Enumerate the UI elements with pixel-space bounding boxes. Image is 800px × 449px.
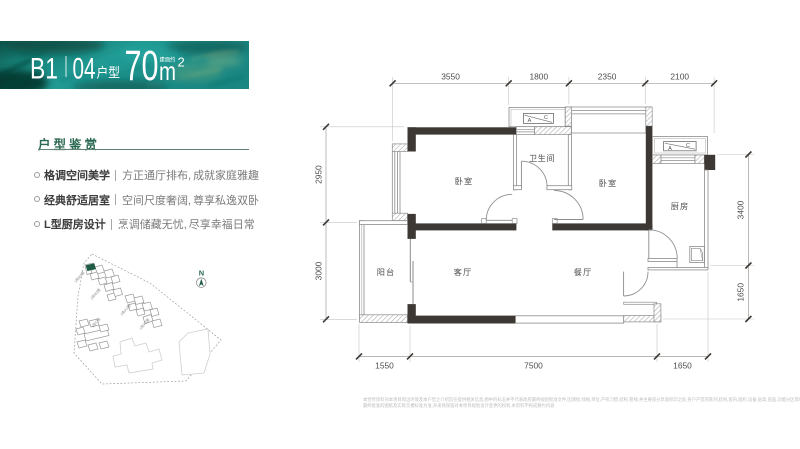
- svg-text:N: N: [199, 269, 204, 278]
- svg-text:2100: 2100: [670, 72, 689, 82]
- svg-text:1800: 1800: [529, 72, 548, 82]
- svg-text:1550: 1550: [375, 361, 394, 371]
- svg-text:客厅: 客厅: [454, 267, 472, 277]
- svg-text:C: C: [686, 143, 690, 149]
- svg-text:C: C: [544, 115, 548, 121]
- svg-text:A: A: [528, 118, 532, 124]
- svg-text:3000: 3000: [314, 261, 324, 280]
- svg-text:厨房: 厨房: [671, 201, 689, 211]
- svg-text:1栋B3座: 1栋B3座: [73, 270, 86, 284]
- svg-text:1栋B2座: 1栋B2座: [89, 287, 102, 301]
- svg-text:3400: 3400: [736, 200, 746, 219]
- svg-text:7500: 7500: [524, 361, 543, 371]
- svg-text:1650: 1650: [673, 361, 692, 371]
- svg-text:卧室: 卧室: [599, 178, 617, 188]
- svg-text:餐厅: 餐厅: [574, 268, 592, 277]
- svg-text:1650: 1650: [736, 283, 746, 302]
- svg-text:阳台: 阳台: [377, 267, 395, 277]
- svg-text:卧室: 卧室: [455, 176, 473, 186]
- svg-text:A: A: [668, 146, 672, 152]
- svg-text:卫生间: 卫生间: [529, 153, 555, 163]
- svg-text:2950: 2950: [314, 165, 324, 184]
- svg-text:2350: 2350: [598, 72, 617, 82]
- svg-text:3550: 3550: [441, 72, 460, 82]
